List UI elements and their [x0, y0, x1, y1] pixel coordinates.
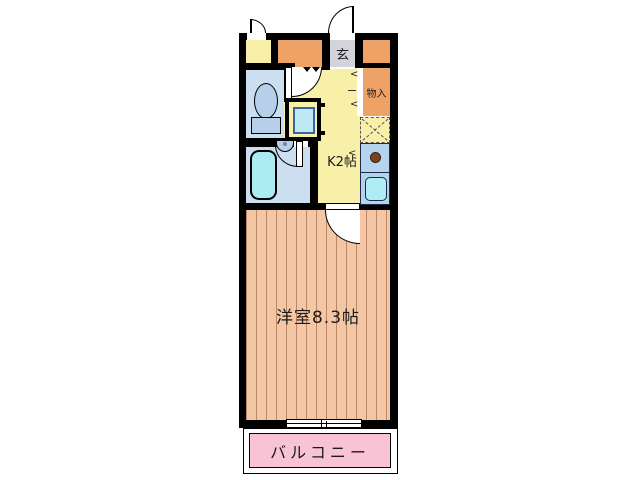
balcony: バルコニー	[249, 433, 391, 468]
outer-wall-right	[390, 33, 398, 428]
hinge-mark	[321, 103, 325, 107]
counter-divider	[361, 172, 389, 173]
window-rail	[287, 423, 361, 424]
kitchen-label-text: K2帖	[327, 151, 357, 170]
sliding-window	[286, 419, 362, 428]
fold-door-mark	[348, 90, 356, 91]
window-sash-mark	[326, 421, 327, 427]
toilet-bowl	[254, 83, 278, 119]
outer-wall-left	[239, 33, 246, 428]
entrance-door-swing	[328, 6, 354, 33]
balcony-label: バルコニー	[270, 439, 370, 463]
ps-door-opening	[247, 33, 266, 40]
window-sash-mark	[321, 420, 322, 427]
bathtub	[250, 150, 277, 200]
western-room: 洋室8.3帖	[246, 210, 390, 420]
ps-door-swing	[250, 19, 266, 33]
entrance-door-opening	[330, 33, 355, 40]
entrance-label: 玄	[336, 44, 349, 63]
toilet-tank	[251, 117, 281, 134]
entrance-area: 玄	[330, 40, 355, 67]
step-mark	[312, 67, 320, 72]
hinge-mark	[321, 131, 325, 135]
door-swing-chevron-icon: <	[350, 100, 358, 110]
stove-burner	[370, 152, 381, 163]
floor-plan: 玄 洋室8.3帖 物入	[0, 0, 638, 480]
washroom-door-leaf	[285, 67, 292, 99]
refrigerator-space	[360, 117, 390, 143]
wall	[355, 63, 390, 68]
wall	[310, 147, 318, 210]
kitchen-label: K2帖	[318, 151, 366, 169]
wall	[322, 40, 330, 70]
washing-machine	[293, 107, 315, 134]
western-room-label: 洋室8.3帖	[276, 303, 360, 328]
step-mark	[303, 67, 311, 72]
room-door-leaf	[325, 203, 360, 210]
kitchen-sink	[365, 177, 387, 201]
refrigerator-cross-icon	[361, 118, 389, 142]
storage-label: 物入	[367, 85, 387, 100]
storage-closet: 物入	[363, 68, 390, 116]
door-swing-chevron-icon: <	[350, 70, 358, 80]
